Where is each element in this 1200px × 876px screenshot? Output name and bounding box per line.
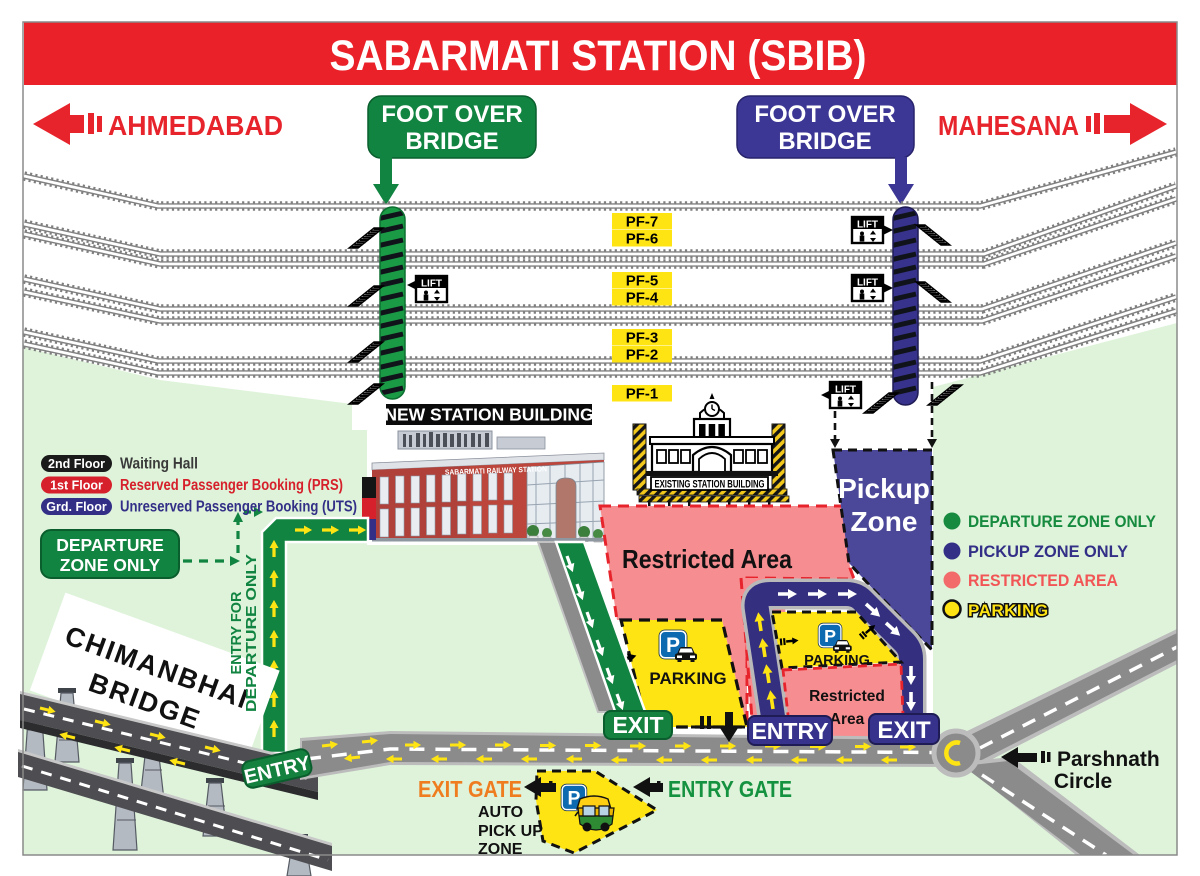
svg-text:Reserved Passenger Booking (PR: Reserved Passenger Booking (PRS) [120,477,343,494]
svg-text:Waiting Hall: Waiting Hall [120,456,198,473]
svg-text:ZONE ONLY: ZONE ONLY [60,555,161,575]
svg-text:Circle: Circle [1054,770,1112,793]
svg-text:PF-2: PF-2 [626,347,659,364]
svg-text:ENTRY GATE: ENTRY GATE [668,776,792,802]
svg-text:PF-3: PF-3 [626,330,659,347]
svg-text:PF-5: PF-5 [626,273,659,290]
svg-text:PICKUP ZONE ONLY: PICKUP ZONE ONLY [968,543,1128,561]
svg-text:EXISTING STATION BUILDING: EXISTING STATION BUILDING [655,479,765,491]
svg-text:Area: Area [830,711,865,728]
svg-text:AUTO: AUTO [478,804,523,821]
svg-text:SABARMATI STATION (SBIB): SABARMATI STATION (SBIB) [330,32,867,80]
svg-text:PICK UP: PICK UP [478,823,543,840]
svg-text:BRIDGE: BRIDGE [405,128,498,155]
svg-text:EXIT GATE: EXIT GATE [418,776,522,802]
svg-text:DEPARTURE: DEPARTURE [56,535,164,555]
svg-text:MAHESANA: MAHESANA [938,110,1079,141]
svg-text:1st Floor: 1st Floor [50,479,103,493]
svg-text:PF-1: PF-1 [626,386,659,403]
svg-text:FOOT OVER: FOOT OVER [381,101,522,128]
svg-text:ENTRY: ENTRY [751,718,828,744]
svg-text:Parshnath: Parshnath [1057,748,1160,771]
svg-text:PF-4: PF-4 [626,290,659,307]
svg-text:EXIT: EXIT [612,712,663,738]
svg-text:Zone: Zone [851,506,918,537]
svg-text:PF-6: PF-6 [626,231,659,248]
svg-text:Unreserved Passenger Booking (: Unreserved Passenger Booking (UTS) [120,499,357,516]
svg-text:Pickup: Pickup [838,473,930,504]
svg-text:NEW STATION BUILDING: NEW STATION BUILDING [384,405,593,425]
svg-text:BRIDGE: BRIDGE [778,128,871,155]
svg-text:DEPARTURE ZONE ONLY: DEPARTURE ZONE ONLY [968,513,1156,531]
svg-text:Grd. Floor: Grd. Floor [46,500,107,514]
svg-text:DEPARTURE ONLY: DEPARTURE ONLY [243,554,260,712]
svg-text:2nd Floor: 2nd Floor [48,457,105,471]
svg-text:AHMEDABAD: AHMEDABAD [108,110,283,141]
svg-text:EXIT: EXIT [877,717,931,744]
svg-text:Restricted: Restricted [809,688,885,705]
svg-text:PARKING: PARKING [649,669,726,688]
svg-text:FOOT OVER: FOOT OVER [754,101,895,128]
svg-text:PF-7: PF-7 [626,214,659,231]
svg-text:RESTRICTED AREA: RESTRICTED AREA [968,572,1118,590]
svg-text:PARKING: PARKING [968,601,1049,620]
svg-text:Restricted Area: Restricted Area [622,544,792,574]
